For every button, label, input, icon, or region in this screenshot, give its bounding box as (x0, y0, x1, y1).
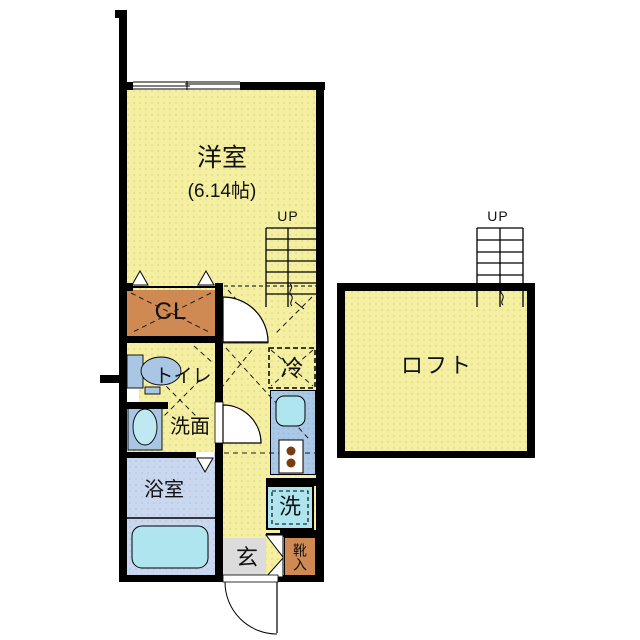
bathroom-floor (127, 452, 215, 575)
closet-label: CL (131, 300, 211, 324)
shoe-cabinet-label: 靴入 (285, 539, 315, 575)
washing-machine-label: 洗 (268, 496, 312, 518)
wall-exterior-stub (100, 375, 119, 383)
entrance-label: 玄 (226, 547, 268, 569)
refrigerator-label: 冷 (271, 357, 313, 380)
western-room-size-label: (6.14帖) (152, 182, 292, 201)
stairs-up-label-loft: UP (479, 209, 517, 223)
entrance-door-swing (225, 582, 277, 634)
kitchen-counter (270, 390, 316, 475)
loft-label: ロフト (387, 355, 487, 377)
stairs-up-label-main: UP (269, 209, 307, 223)
wall-cap (115, 10, 127, 18)
bathroom-label: 浴室 (124, 480, 204, 500)
floor-plan: 洋室 (6.14帖) CL トイレ 洗面 浴室 冷 洗 玄 靴入 ロフト UP … (0, 0, 640, 640)
washroom-label: 洗面 (150, 417, 230, 437)
toilet-label: トイレ (143, 367, 223, 386)
western-room-label: 洋室 (152, 146, 292, 171)
